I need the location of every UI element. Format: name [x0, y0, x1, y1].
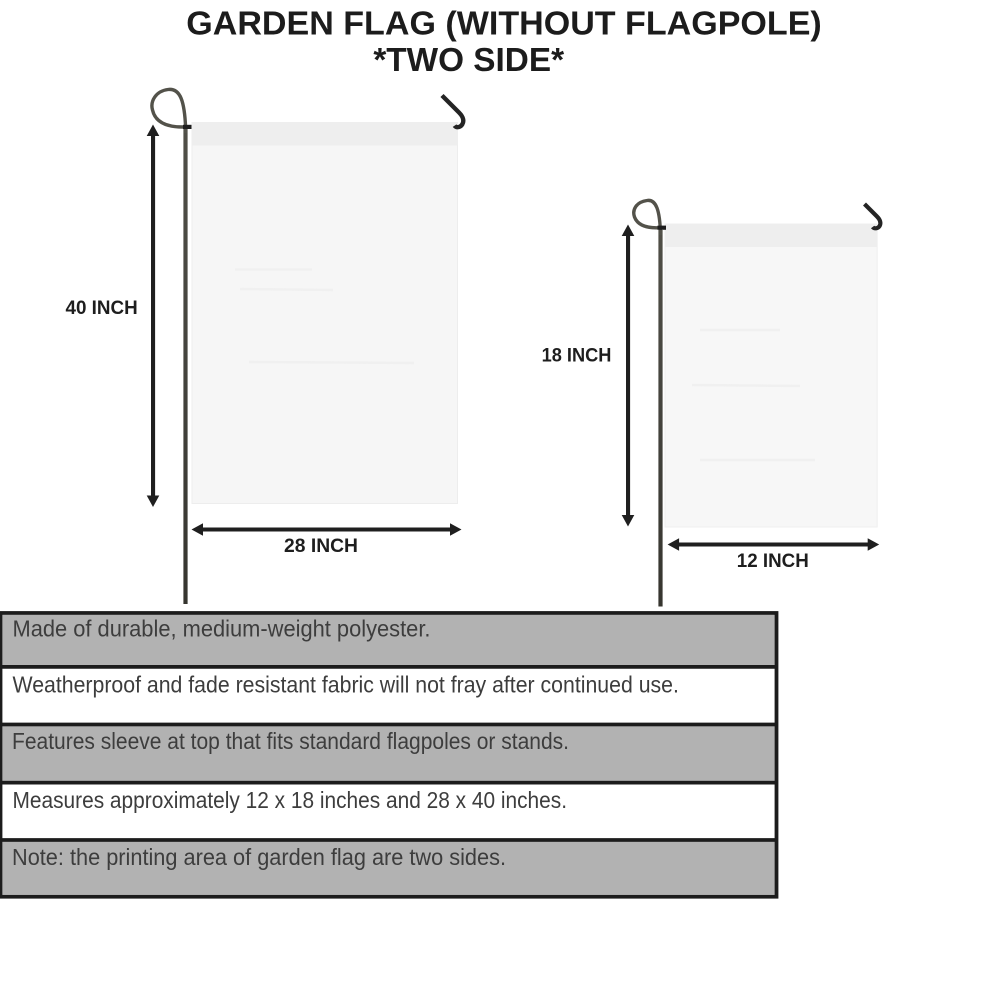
svg-text:28 INCH: 28 INCH — [284, 536, 358, 557]
svg-text:GARDEN FLAG (WITHOUT FLAGPOLE): GARDEN FLAG (WITHOUT FLAGPOLE) — [186, 5, 822, 42]
svg-text:12 INCH: 12 INCH — [737, 551, 809, 572]
svg-text:Features sleeve at top that fi: Features sleeve at top that fits standar… — [12, 728, 569, 754]
svg-text:*TWO SIDE*: *TWO SIDE* — [373, 41, 564, 78]
svg-text:40 INCH: 40 INCH — [66, 298, 138, 319]
svg-text:Measures approximately 12 x 18: Measures approximately 12 x 18 inches an… — [13, 787, 568, 813]
svg-text:18 INCH: 18 INCH — [542, 345, 612, 366]
svg-text:Weatherproof and fade resistan: Weatherproof and fade resistant fabric w… — [13, 672, 679, 698]
svg-text:Note: the printing area of gar: Note: the printing area of garden flag a… — [12, 844, 506, 870]
svg-text:Made of durable, medium-weight: Made of durable, medium-weight polyester… — [13, 616, 431, 642]
